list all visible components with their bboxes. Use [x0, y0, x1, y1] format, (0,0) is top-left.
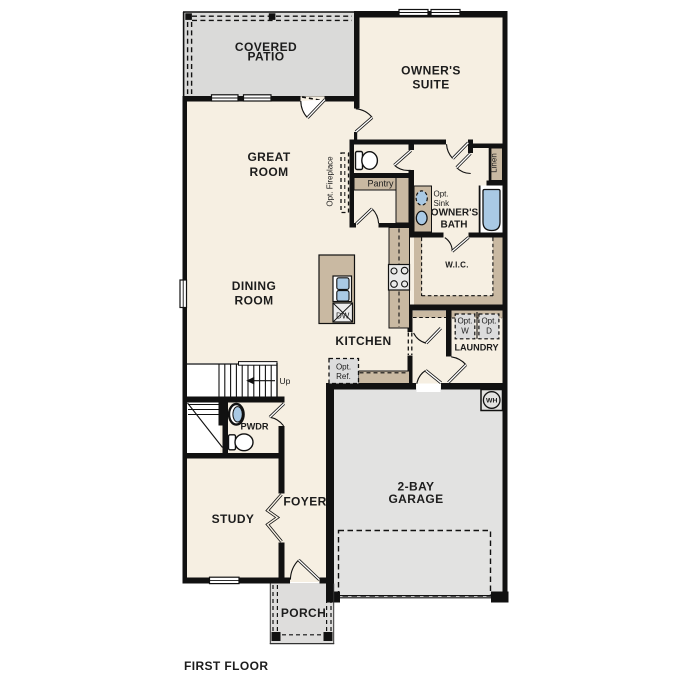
- svg-text:GARAGE: GARAGE: [388, 492, 443, 506]
- svg-text:DINING: DINING: [232, 279, 276, 293]
- svg-text:Opt.: Opt.: [481, 317, 496, 326]
- svg-text:W: W: [461, 327, 469, 336]
- svg-text:Ref.: Ref.: [336, 372, 351, 381]
- svg-text:KITCHEN: KITCHEN: [335, 334, 391, 348]
- svg-text:Sink: Sink: [434, 199, 451, 208]
- svg-text:BATH: BATH: [440, 220, 467, 231]
- svg-text:Opt.: Opt.: [434, 190, 449, 199]
- svg-text:PORCH: PORCH: [281, 606, 326, 620]
- svg-text:SUITE: SUITE: [412, 78, 449, 92]
- svg-text:Opt.: Opt.: [457, 317, 472, 326]
- svg-text:DW: DW: [336, 311, 350, 320]
- svg-text:D: D: [486, 327, 492, 336]
- svg-text:OWNER'S: OWNER'S: [431, 208, 479, 219]
- svg-text:ROOM: ROOM: [250, 165, 289, 179]
- svg-text:OWNER'S: OWNER'S: [401, 64, 461, 78]
- svg-text:Linen: Linen: [490, 153, 499, 173]
- svg-text:GREAT: GREAT: [247, 150, 290, 164]
- svg-text:Up: Up: [280, 376, 291, 386]
- svg-text:LAUNDRY: LAUNDRY: [454, 343, 498, 353]
- svg-text:Opt. Fireplace: Opt. Fireplace: [326, 156, 335, 207]
- svg-text:WH: WH: [486, 398, 497, 405]
- svg-text:Opt.: Opt.: [336, 363, 351, 372]
- svg-text:ROOM: ROOM: [235, 294, 274, 308]
- svg-text:FOYER: FOYER: [283, 495, 326, 509]
- svg-text:Pantry: Pantry: [367, 179, 394, 189]
- svg-text:STUDY: STUDY: [212, 512, 255, 526]
- svg-text:FIRST FLOOR: FIRST FLOOR: [184, 659, 268, 673]
- svg-text:W.I.C.: W.I.C.: [445, 261, 469, 270]
- svg-text:PATIO: PATIO: [248, 50, 285, 64]
- svg-text:PWDR: PWDR: [240, 422, 268, 432]
